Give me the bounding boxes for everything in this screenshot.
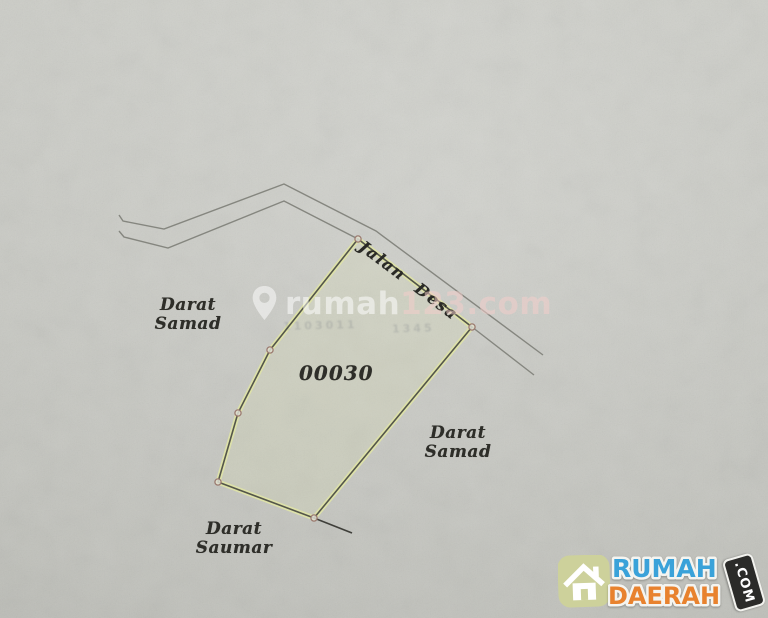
boundary-extension-line bbox=[314, 518, 352, 533]
map-pin-icon bbox=[251, 285, 278, 322]
area-label-south-line1: Darat bbox=[178, 520, 290, 539]
area-label-west-line2: Samad bbox=[138, 315, 238, 334]
area-label-east-line2: Samad bbox=[408, 443, 508, 462]
area-label-west: Darat Samad bbox=[138, 296, 238, 334]
vertex-marker bbox=[235, 410, 241, 416]
vertex-marker bbox=[311, 515, 317, 521]
area-label-east: Darat Samad bbox=[408, 424, 508, 462]
vertex-marker bbox=[469, 324, 475, 330]
area-label-south: Darat Saumar bbox=[178, 520, 290, 558]
house-icon bbox=[558, 555, 610, 608]
area-label-west-line1: Darat bbox=[138, 296, 238, 315]
vertex-marker bbox=[215, 479, 221, 485]
area-label-south-line2: Saumar bbox=[178, 539, 290, 558]
rumah-daerah-logo: RUMAH DAERAH .COM bbox=[552, 547, 768, 615]
watermark-text-prefix: rumah bbox=[285, 286, 400, 322]
scanned-land-plot-document: Darat Samad Darat Samad Darat Saumar 000… bbox=[0, 0, 768, 618]
area-label-east-line1: Darat bbox=[408, 424, 508, 443]
watermark-text: rumah123.com bbox=[285, 286, 552, 322]
logo-word-daerah: DAERAH bbox=[608, 582, 720, 610]
vertex-marker bbox=[267, 347, 273, 353]
rumah123-watermark: rumah123.com bbox=[251, 285, 552, 322]
vertex-marker bbox=[355, 236, 361, 242]
logo-com-badge-text: .COM bbox=[731, 560, 757, 605]
parcel-number: 00030 bbox=[299, 362, 373, 384]
logo-word-rumah: RUMAH bbox=[612, 554, 717, 583]
logo-wordmark: RUMAH DAERAH bbox=[608, 545, 738, 613]
bleedthrough-marks-right: 1345 bbox=[392, 321, 435, 335]
watermark-text-suffix: 123.com bbox=[400, 286, 552, 322]
